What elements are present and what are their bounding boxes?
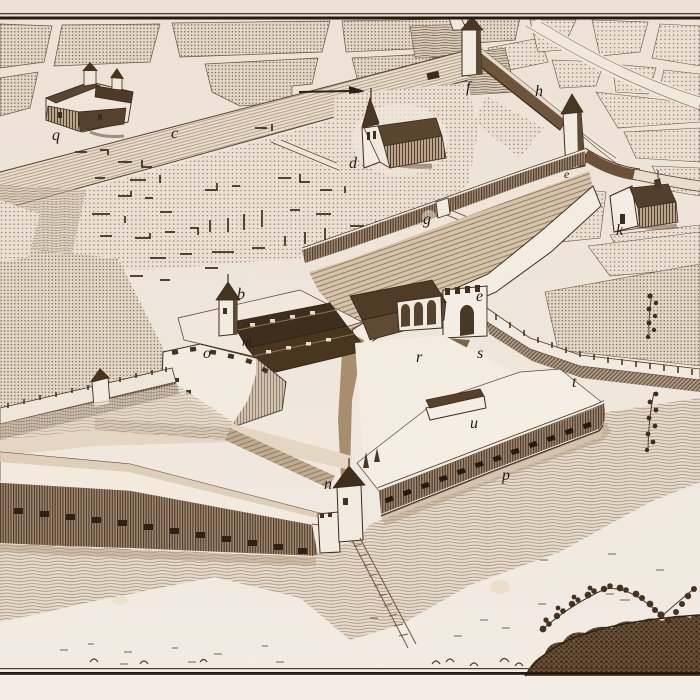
svg-text:g: g (423, 211, 431, 228)
svg-text:b: b (237, 286, 245, 303)
svg-text:u: u (470, 415, 478, 432)
svg-text:e: e (564, 167, 570, 181)
svg-text:o: o (203, 345, 211, 362)
svg-text:k: k (616, 222, 624, 239)
svg-text:r: r (416, 349, 423, 366)
svg-text:t: t (572, 374, 577, 391)
svg-text:n: n (324, 476, 332, 493)
svg-text:s: s (477, 345, 483, 362)
svg-text:e: e (476, 288, 483, 305)
svg-text:d: d (349, 155, 358, 172)
svg-text:p: p (501, 467, 510, 484)
svg-text:c: c (171, 125, 178, 142)
svg-text:m: m (242, 334, 251, 349)
svg-text:q: q (52, 127, 60, 144)
svg-text:h: h (535, 83, 543, 100)
